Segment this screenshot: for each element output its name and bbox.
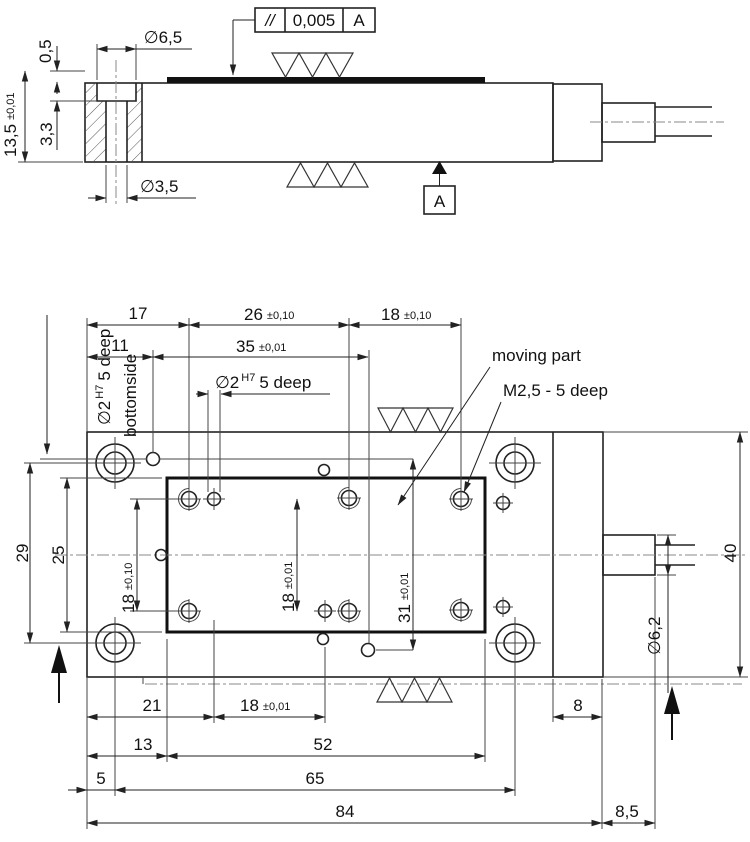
counterbore-hole bbox=[489, 437, 541, 489]
fit-hole-dia: ∅2 bbox=[215, 373, 239, 392]
parallelism-frame: // 0,005 A bbox=[233, 8, 375, 75]
dim-31-tol: ±0,01 bbox=[399, 573, 411, 600]
dim-26-value: 26 bbox=[244, 305, 263, 324]
dim-18-left-value: 18 bbox=[119, 594, 138, 613]
dim-13-5-value: 13,5 bbox=[1, 124, 20, 157]
label-bottomside-word: bottomside bbox=[121, 354, 140, 437]
dim-13-5: 13,5±0,01 bbox=[1, 92, 20, 157]
dim-dia3-5: ∅3,5 bbox=[140, 177, 178, 196]
dim-18-center-value: 18 bbox=[279, 593, 298, 612]
dim-35-tol: ±0,01 bbox=[259, 342, 286, 354]
dim-13: 13 bbox=[134, 735, 153, 754]
parallelism-symbol: // bbox=[264, 11, 277, 30]
dim-18-center: 18±0,01 bbox=[279, 562, 298, 612]
dim-3-3: 3,3 bbox=[37, 122, 56, 146]
datum-label: A bbox=[434, 192, 446, 211]
datum-triangle bbox=[432, 161, 447, 174]
dim-8-5: 8,5 bbox=[615, 802, 639, 821]
dim-26-tol: ±0,10 bbox=[267, 310, 294, 322]
label-fit-hole: ∅2H75 deep bbox=[215, 372, 311, 392]
dim-0-5: 0,5 bbox=[36, 39, 55, 63]
dim-18-top-value: 18 bbox=[381, 305, 400, 324]
dim-dia6-5: ∅6,5 bbox=[144, 28, 182, 47]
view-direction-arrow-left bbox=[51, 645, 67, 703]
dim-18-left: 18±0,10 bbox=[119, 563, 138, 613]
threaded-hole bbox=[449, 598, 473, 622]
fit-hole bbox=[203, 488, 225, 510]
fit-hole bbox=[147, 453, 160, 466]
section-hatch bbox=[85, 83, 142, 162]
side-moving-table-strip bbox=[167, 77, 485, 83]
fit-hole bbox=[362, 644, 375, 657]
fit-hole bbox=[314, 600, 336, 622]
dim-26: 26±0,10 bbox=[244, 305, 294, 324]
extension-lines bbox=[18, 44, 136, 203]
view-direction-arrow-right bbox=[664, 686, 680, 740]
dim-40: 40 bbox=[721, 544, 740, 563]
technical-drawing-page: ∅6,5 0,5 13,5±0,01 3,3 ∅3,5 // 0,005 A bbox=[0, 0, 750, 837]
datum-a-flag: A bbox=[424, 161, 455, 214]
dim-18-bottom-value: 18 bbox=[240, 696, 259, 715]
dim-17: 17 bbox=[129, 304, 148, 323]
fit-hole bbox=[493, 493, 513, 513]
dim-18-left-tol: ±0,10 bbox=[123, 563, 135, 590]
parallelism-datum: A bbox=[353, 11, 365, 30]
dim-18-top-tol: ±0,10 bbox=[404, 310, 431, 322]
surface-finish-plan-bottom bbox=[377, 678, 452, 702]
surface-finish-bottom bbox=[287, 163, 368, 187]
leader-moving-part bbox=[398, 367, 490, 505]
label-bottomside-hole: ∅2H75 deep bbox=[94, 329, 114, 425]
dim-13-5-tol: ±0,01 bbox=[5, 92, 17, 119]
threaded-hole bbox=[337, 599, 361, 623]
fit-hole-fit: H7 bbox=[241, 372, 255, 384]
dim-18-bottom-tol: ±0,01 bbox=[263, 701, 290, 713]
counterbore-holes bbox=[89, 437, 541, 669]
fit-hole-depth: 5 deep bbox=[259, 373, 311, 392]
dim-31-value: 31 bbox=[395, 604, 414, 623]
dim-84: 84 bbox=[336, 802, 355, 821]
side-body bbox=[85, 83, 553, 162]
side-view: ∅6,5 0,5 13,5±0,01 3,3 ∅3,5 // 0,005 A bbox=[1, 8, 724, 214]
surface-finish-top bbox=[272, 53, 353, 77]
counterbore-hole bbox=[489, 617, 541, 669]
dim-5: 5 bbox=[96, 769, 105, 788]
dim-18-center-tol: ±0,01 bbox=[283, 562, 295, 589]
fit-hole bbox=[319, 465, 330, 476]
bottom-hole-dia: ∅2 bbox=[95, 401, 114, 425]
dim-25: 25 bbox=[49, 546, 68, 565]
fit-hole bbox=[318, 634, 329, 645]
plan-view: 17 26±0,10 18±0,10 11 35±0,01 ∅2H75 deep… bbox=[13, 304, 748, 829]
dim-65: 65 bbox=[306, 769, 325, 788]
dim-18-bottom: 18±0,01 bbox=[240, 696, 290, 715]
dim-6-2: ∅6,2 bbox=[645, 617, 664, 655]
dim-35-value: 35 bbox=[236, 337, 255, 356]
bottom-hole-fit: H7 bbox=[94, 385, 106, 399]
surface-finish-plan-top bbox=[378, 408, 453, 432]
dim-35: 35±0,01 bbox=[236, 337, 286, 356]
bottom-hole-depth: 5 deep bbox=[95, 329, 114, 381]
drawing-canvas: ∅6,5 0,5 13,5±0,01 3,3 ∅3,5 // 0,005 A bbox=[0, 0, 750, 837]
dim-52: 52 bbox=[314, 735, 333, 754]
dim-8: 8 bbox=[573, 696, 582, 715]
dim-21: 21 bbox=[143, 696, 162, 715]
label-moving-part: moving part bbox=[492, 346, 581, 365]
fit-hole bbox=[493, 597, 513, 617]
parallelism-value: 0,005 bbox=[293, 11, 336, 30]
dim-29: 29 bbox=[13, 544, 32, 563]
dim-18-top: 18±0,10 bbox=[381, 305, 431, 324]
label-thread: M2,5 - 5 deep bbox=[503, 381, 608, 400]
dim-31: 31±0,01 bbox=[395, 573, 414, 623]
